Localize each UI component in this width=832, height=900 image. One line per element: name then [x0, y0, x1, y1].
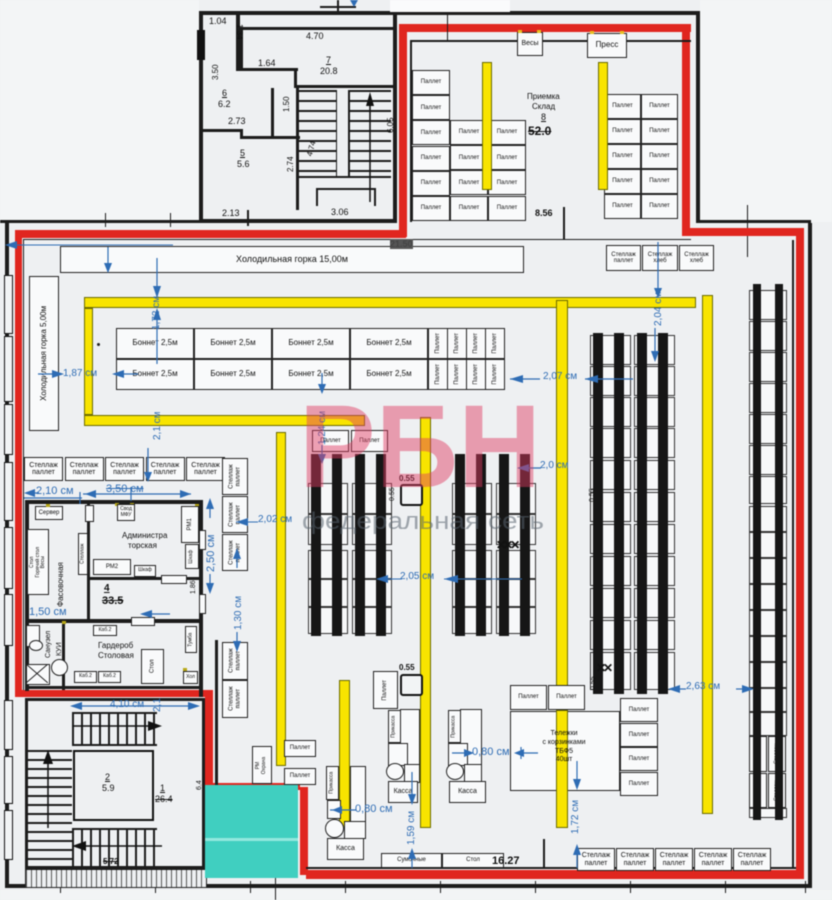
svg-text:федеральная сеть: федеральная сеть: [302, 508, 544, 535]
svg-text:РБН: РБН: [299, 381, 541, 513]
